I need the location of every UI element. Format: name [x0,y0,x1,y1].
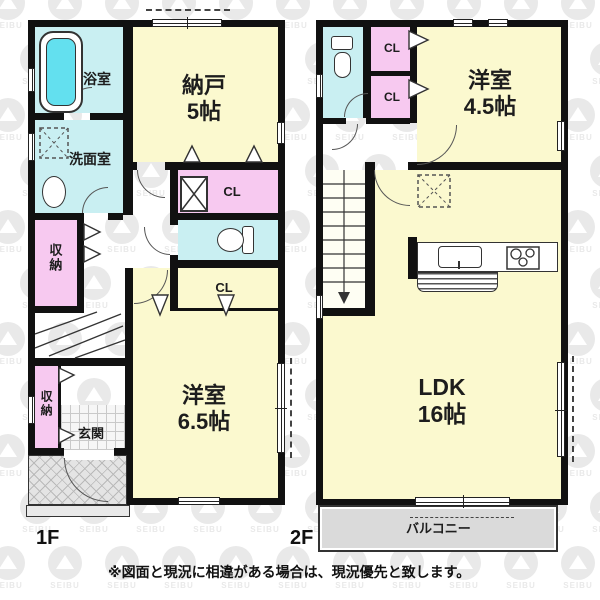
stairs-1f-icon [35,312,125,358]
folding-door-icon [409,31,428,49]
pipe-space-icon [417,174,451,208]
folding-door-icon [246,146,262,162]
window [316,74,323,98]
eaves-dashed-line [290,358,292,458]
wall [323,308,375,316]
label-closet-b: CL [384,90,400,104]
label-ldk: LDK 16帖 [418,374,467,428]
window [152,19,222,27]
wall [170,213,278,220]
window [453,19,473,27]
closet-box-icon [180,176,208,212]
disclaimer-text: ※図面と現況に相違がある場合は、現況優先と致します。 [108,562,470,582]
eaves-dashed-line [146,9,230,11]
folding-door-icon [218,295,234,315]
basin-icon [42,176,66,208]
floor-label-1f: 1F [36,527,59,550]
watermark-logo: SEIBU [0,98,28,142]
bathtub-icon [39,31,83,113]
label-western-1f-size: 6.5帖 [178,409,231,435]
wall [123,27,133,215]
label-western-2f-size: 4.5帖 [464,94,517,120]
sink-icon [438,246,482,268]
watermark-logo: SEIBU [0,546,28,590]
kitchen-cabinet-front [417,272,498,292]
folding-door-icon [152,295,168,315]
wall [77,220,84,306]
label-ldk-size: 16帖 [418,401,467,428]
wall [35,448,64,455]
watermark-logo: SEIBU [587,154,600,198]
label-storage-room-size: 5帖 [182,99,226,125]
washer-space-icon [39,127,69,159]
watermark-logo: SEIBU [587,490,600,534]
label-balcony: バルコニー [406,521,471,536]
label-closet2: CL [215,280,232,295]
label-entrance: 玄関 [78,426,104,441]
folding-door-icon [409,80,428,98]
toilet-bowl-icon [334,52,351,78]
stairs-2f-icon [323,170,365,308]
watermark-logo: SEIBU [0,0,28,30]
watermark-logo: SEIBU [501,546,541,590]
label-western-1f-name: 洋室 [178,383,231,409]
sink-tap [458,261,460,269]
balcony: バルコニー [318,505,558,552]
wall [108,213,123,220]
wall [35,113,64,120]
wall [365,162,375,313]
toilet-bowl-icon [217,228,244,252]
wall [114,448,133,455]
eaves-dashed-line [572,356,574,462]
window [28,133,35,161]
label-storage1: 収納 [47,243,62,273]
label-western-1f: 洋室 6.5帖 [178,383,231,435]
floor-label-2f: 2F [290,527,313,550]
wall [165,162,278,170]
window [488,19,508,27]
window [277,363,285,453]
watermark-logo: SEIBU [558,546,598,590]
wall [35,358,133,366]
stove-icon [506,246,540,270]
label-storage2: 収納 [39,390,53,418]
window [557,362,565,457]
folding-door-icon [59,368,74,383]
label-western-2f: 洋室 4.5帖 [464,68,517,120]
label-storage-room-name: 納戸 [182,73,226,99]
window [28,396,35,424]
balcony-dashed-line [410,517,514,518]
wall [408,237,417,279]
label-washroom: 洗面室 [69,151,111,168]
folding-door-icon [184,146,200,162]
watermark-logo: SEIBU [587,378,600,422]
window [28,68,35,92]
toilet-tank-icon [331,36,353,50]
window [316,295,323,319]
window [415,497,510,506]
window [178,497,220,505]
label-ldk-name: LDK [418,374,467,401]
label-closet-a: CL [384,41,400,55]
window [277,122,285,144]
wall [35,213,84,220]
folding-door-icon [84,224,100,240]
entrance-step [26,505,130,517]
window [557,121,565,151]
label-closet1: CL [223,184,240,199]
wall [170,260,278,268]
label-storage-room: 納戸 5帖 [182,73,226,125]
folding-door-icon [59,428,74,443]
watermark-logo: SEIBU [0,210,28,254]
wall [371,71,410,76]
watermark-logo: SEIBU [587,266,600,310]
bathtub-water [46,38,76,106]
wall [90,113,123,120]
wall [408,162,561,170]
watermark-logo: SEIBU [587,42,600,86]
watermark-logo: SEIBU [0,434,28,478]
wall [366,118,410,124]
label-western-2f-name: 洋室 [464,68,517,94]
watermark-logo: SEIBU [0,322,28,366]
watermark-logo: SEIBU [45,546,85,590]
wall [133,162,137,170]
label-bath: 浴室 [83,71,111,88]
folding-door-icon [84,246,100,262]
floorplan-page: SEIBUSEIBUSEIBUSEIBUSEIBUSEIBUSEIBUSEIBU… [0,0,600,600]
